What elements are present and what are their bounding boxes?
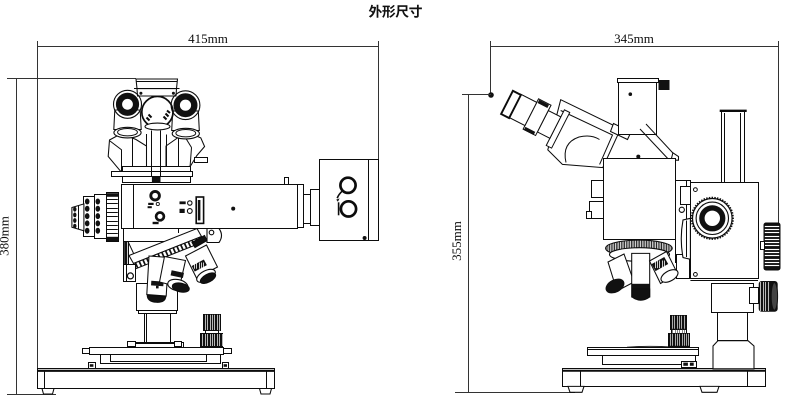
svg-text:380mm: 380mm xyxy=(0,216,12,256)
svg-text:355mm: 355mm xyxy=(449,221,464,261)
svg-text:415mm: 415mm xyxy=(188,31,228,46)
svg-text:345mm: 345mm xyxy=(614,31,654,46)
